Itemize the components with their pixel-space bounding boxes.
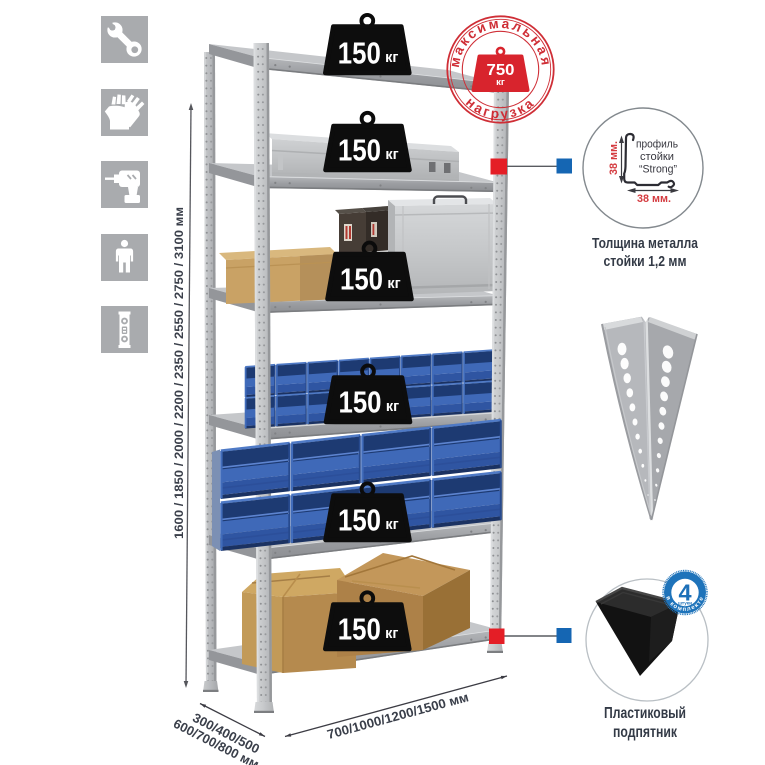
svg-text:1600 / 1850 / 2000 / 2200 / 23: 1600 / 1850 / 2000 / 2200 / 2350 / 2550 … <box>172 207 186 539</box>
svg-text:профиль: профиль <box>636 139 678 151</box>
svg-text:кг: кг <box>387 276 400 292</box>
svg-text:подпятник: подпятник <box>613 724 677 741</box>
svg-text:150: 150 <box>338 36 381 71</box>
svg-text:штуки: штуки <box>678 601 692 606</box>
svg-text:кг: кг <box>385 626 398 642</box>
svg-text:стойки: стойки <box>640 151 674 163</box>
svg-text:Пластиковый: Пластиковый <box>604 705 686 722</box>
svg-text:150: 150 <box>338 612 381 647</box>
svg-text:кг: кг <box>386 399 399 415</box>
svg-text:кг: кг <box>385 147 398 163</box>
svg-text:38 мм.: 38 мм. <box>608 141 620 175</box>
svg-text:150: 150 <box>340 262 383 297</box>
svg-text:38 мм.: 38 мм. <box>637 193 671 205</box>
svg-text:кг: кг <box>385 50 398 66</box>
svg-text:стойки 1,2 мм: стойки 1,2 мм <box>604 254 687 270</box>
svg-text:Толщина металла: Толщина металла <box>592 236 699 252</box>
svg-text:кг: кг <box>385 517 398 533</box>
svg-text:150: 150 <box>338 503 381 538</box>
svg-text:150: 150 <box>338 133 381 168</box>
svg-text:150: 150 <box>339 385 382 420</box>
svg-text:кг: кг <box>496 77 505 88</box>
svg-text:“Strong”: “Strong” <box>639 164 677 176</box>
